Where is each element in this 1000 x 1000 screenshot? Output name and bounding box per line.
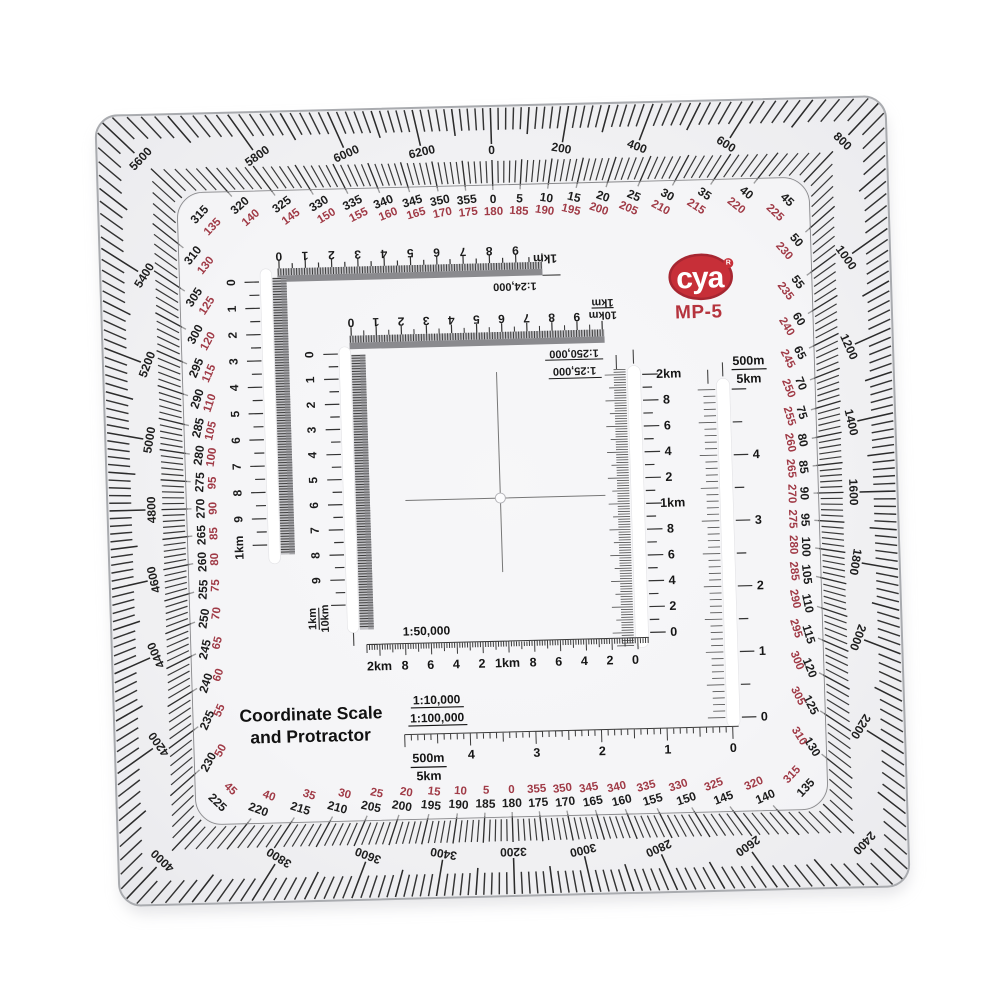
svg-text:8: 8: [401, 659, 408, 673]
svg-text:8: 8: [548, 311, 555, 325]
svg-text:1km: 1km: [495, 656, 520, 671]
svg-text:190: 190: [448, 797, 469, 812]
svg-text:7: 7: [230, 463, 244, 470]
svg-text:4: 4: [453, 657, 460, 671]
svg-text:1km: 1km: [533, 251, 557, 266]
svg-text:355: 355: [527, 783, 548, 796]
svg-text:0: 0: [490, 192, 497, 206]
svg-text:5: 5: [306, 476, 320, 483]
svg-text:265: 265: [784, 458, 798, 479]
svg-text:8: 8: [230, 489, 244, 496]
svg-text:3: 3: [422, 314, 429, 328]
svg-text:185: 185: [509, 205, 529, 218]
svg-text:1:250,000: 1:250,000: [549, 346, 599, 359]
svg-text:175: 175: [528, 795, 549, 810]
svg-text:8: 8: [308, 552, 322, 559]
svg-text:95: 95: [206, 476, 219, 490]
svg-text:3: 3: [354, 247, 361, 261]
svg-text:1: 1: [759, 644, 766, 658]
svg-text:4: 4: [668, 573, 675, 587]
svg-text:3: 3: [533, 746, 540, 760]
svg-text:4: 4: [305, 451, 319, 458]
svg-text:9: 9: [512, 243, 519, 257]
svg-text:0: 0: [275, 249, 282, 263]
svg-text:85: 85: [796, 460, 812, 475]
svg-text:6: 6: [498, 312, 505, 326]
svg-text:5: 5: [228, 410, 242, 417]
svg-text:1km: 1km: [307, 608, 320, 631]
svg-text:275: 275: [192, 471, 207, 492]
svg-text:4: 4: [227, 384, 241, 391]
svg-text:8: 8: [667, 521, 674, 535]
svg-text:10km: 10km: [319, 604, 332, 633]
svg-text:95: 95: [798, 513, 812, 527]
svg-text:9: 9: [573, 310, 580, 324]
svg-text:270: 270: [785, 484, 798, 503]
svg-text:80: 80: [209, 553, 221, 566]
svg-text:0: 0: [347, 316, 354, 330]
svg-text:2: 2: [669, 599, 676, 613]
svg-text:1: 1: [664, 742, 671, 756]
svg-text:195: 195: [420, 797, 442, 813]
svg-text:2: 2: [599, 744, 606, 758]
svg-text:1:25,000: 1:25,000: [553, 364, 597, 377]
svg-text:and Protractor: and Protractor: [250, 725, 371, 748]
svg-text:0: 0: [508, 784, 515, 796]
svg-text:175: 175: [458, 206, 479, 220]
svg-text:8: 8: [485, 244, 492, 258]
svg-text:185: 185: [475, 796, 496, 810]
svg-text:350: 350: [552, 782, 573, 796]
svg-text:MP-5: MP-5: [675, 301, 723, 323]
svg-text:6: 6: [229, 437, 243, 444]
svg-text:3: 3: [226, 358, 240, 365]
svg-text:2: 2: [665, 470, 672, 484]
svg-text:R: R: [726, 260, 731, 267]
svg-text:2: 2: [606, 653, 613, 667]
svg-text:3: 3: [755, 513, 762, 527]
svg-text:cya: cya: [676, 261, 725, 295]
svg-text:7: 7: [308, 527, 322, 534]
svg-text:0: 0: [670, 625, 677, 639]
svg-text:0: 0: [730, 741, 737, 755]
svg-text:275: 275: [786, 509, 799, 529]
svg-text:85: 85: [208, 526, 220, 540]
svg-text:8: 8: [663, 392, 670, 406]
svg-text:5km: 5km: [736, 371, 761, 386]
svg-text:1600: 1600: [846, 479, 861, 506]
svg-text:4800: 4800: [144, 496, 159, 523]
svg-text:180: 180: [502, 796, 523, 811]
svg-text:2: 2: [757, 578, 764, 592]
svg-text:1: 1: [225, 305, 239, 312]
svg-text:255: 255: [195, 579, 210, 600]
svg-text:9: 9: [309, 577, 323, 584]
svg-text:2km: 2km: [656, 366, 681, 381]
svg-text:5: 5: [483, 785, 490, 797]
svg-text:6: 6: [427, 658, 434, 672]
svg-text:3200: 3200: [499, 845, 526, 860]
svg-text:0: 0: [224, 279, 238, 286]
svg-text:6: 6: [664, 418, 671, 432]
svg-text:2: 2: [478, 657, 485, 671]
svg-text:10: 10: [454, 785, 468, 798]
svg-text:0: 0: [761, 709, 768, 723]
svg-text:1km: 1km: [232, 536, 247, 560]
svg-text:6: 6: [668, 547, 675, 561]
svg-text:2: 2: [304, 401, 318, 408]
svg-text:0: 0: [302, 351, 316, 358]
svg-text:4: 4: [447, 313, 454, 327]
svg-text:15: 15: [427, 785, 442, 798]
svg-text:8: 8: [529, 655, 536, 669]
svg-text:5: 5: [472, 312, 479, 326]
svg-text:2: 2: [327, 248, 334, 262]
svg-text:7: 7: [459, 245, 466, 259]
svg-text:500m: 500m: [412, 751, 444, 766]
svg-text:4: 4: [753, 447, 760, 461]
svg-text:1km: 1km: [660, 495, 685, 510]
svg-text:280: 280: [787, 535, 800, 554]
svg-text:6: 6: [433, 245, 440, 259]
svg-text:2: 2: [226, 331, 240, 338]
svg-text:260: 260: [195, 551, 210, 572]
svg-text:3: 3: [305, 426, 319, 433]
svg-text:7: 7: [523, 311, 530, 325]
svg-text:1km: 1km: [591, 296, 614, 309]
svg-text:4: 4: [581, 654, 588, 668]
svg-text:270: 270: [193, 498, 208, 519]
svg-text:75: 75: [210, 578, 223, 592]
svg-text:4: 4: [380, 247, 387, 261]
svg-text:1: 1: [303, 376, 317, 383]
svg-text:100: 100: [799, 536, 814, 557]
svg-text:1: 1: [372, 315, 379, 329]
svg-text:2km: 2km: [367, 659, 392, 674]
svg-text:6: 6: [307, 502, 321, 509]
svg-text:10km: 10km: [588, 308, 617, 321]
svg-text:4: 4: [664, 444, 671, 458]
svg-text:Coordinate Scale: Coordinate Scale: [239, 702, 383, 726]
svg-text:5km: 5km: [416, 769, 441, 784]
svg-text:5: 5: [406, 246, 413, 260]
svg-text:5: 5: [516, 191, 524, 205]
svg-text:180: 180: [484, 206, 504, 218]
svg-text:1:10,000: 1:10,000: [413, 692, 461, 707]
svg-text:500m: 500m: [732, 353, 764, 368]
svg-text:0: 0: [488, 143, 495, 157]
svg-text:90: 90: [797, 487, 811, 501]
svg-text:0: 0: [632, 653, 639, 667]
svg-text:9: 9: [231, 516, 245, 523]
svg-text:170: 170: [554, 793, 576, 809]
svg-text:70: 70: [210, 606, 224, 620]
svg-text:6: 6: [555, 655, 562, 669]
svg-text:1:50,000: 1:50,000: [403, 623, 451, 638]
svg-text:90: 90: [207, 502, 219, 515]
svg-text:265: 265: [194, 525, 209, 546]
svg-text:1:24,000: 1:24,000: [493, 279, 537, 292]
svg-text:1:100,000: 1:100,000: [410, 710, 465, 725]
svg-text:285: 285: [787, 561, 801, 582]
svg-text:20: 20: [399, 786, 414, 800]
svg-text:2: 2: [397, 314, 404, 328]
svg-text:4: 4: [468, 747, 475, 761]
svg-text:1: 1: [301, 249, 308, 263]
